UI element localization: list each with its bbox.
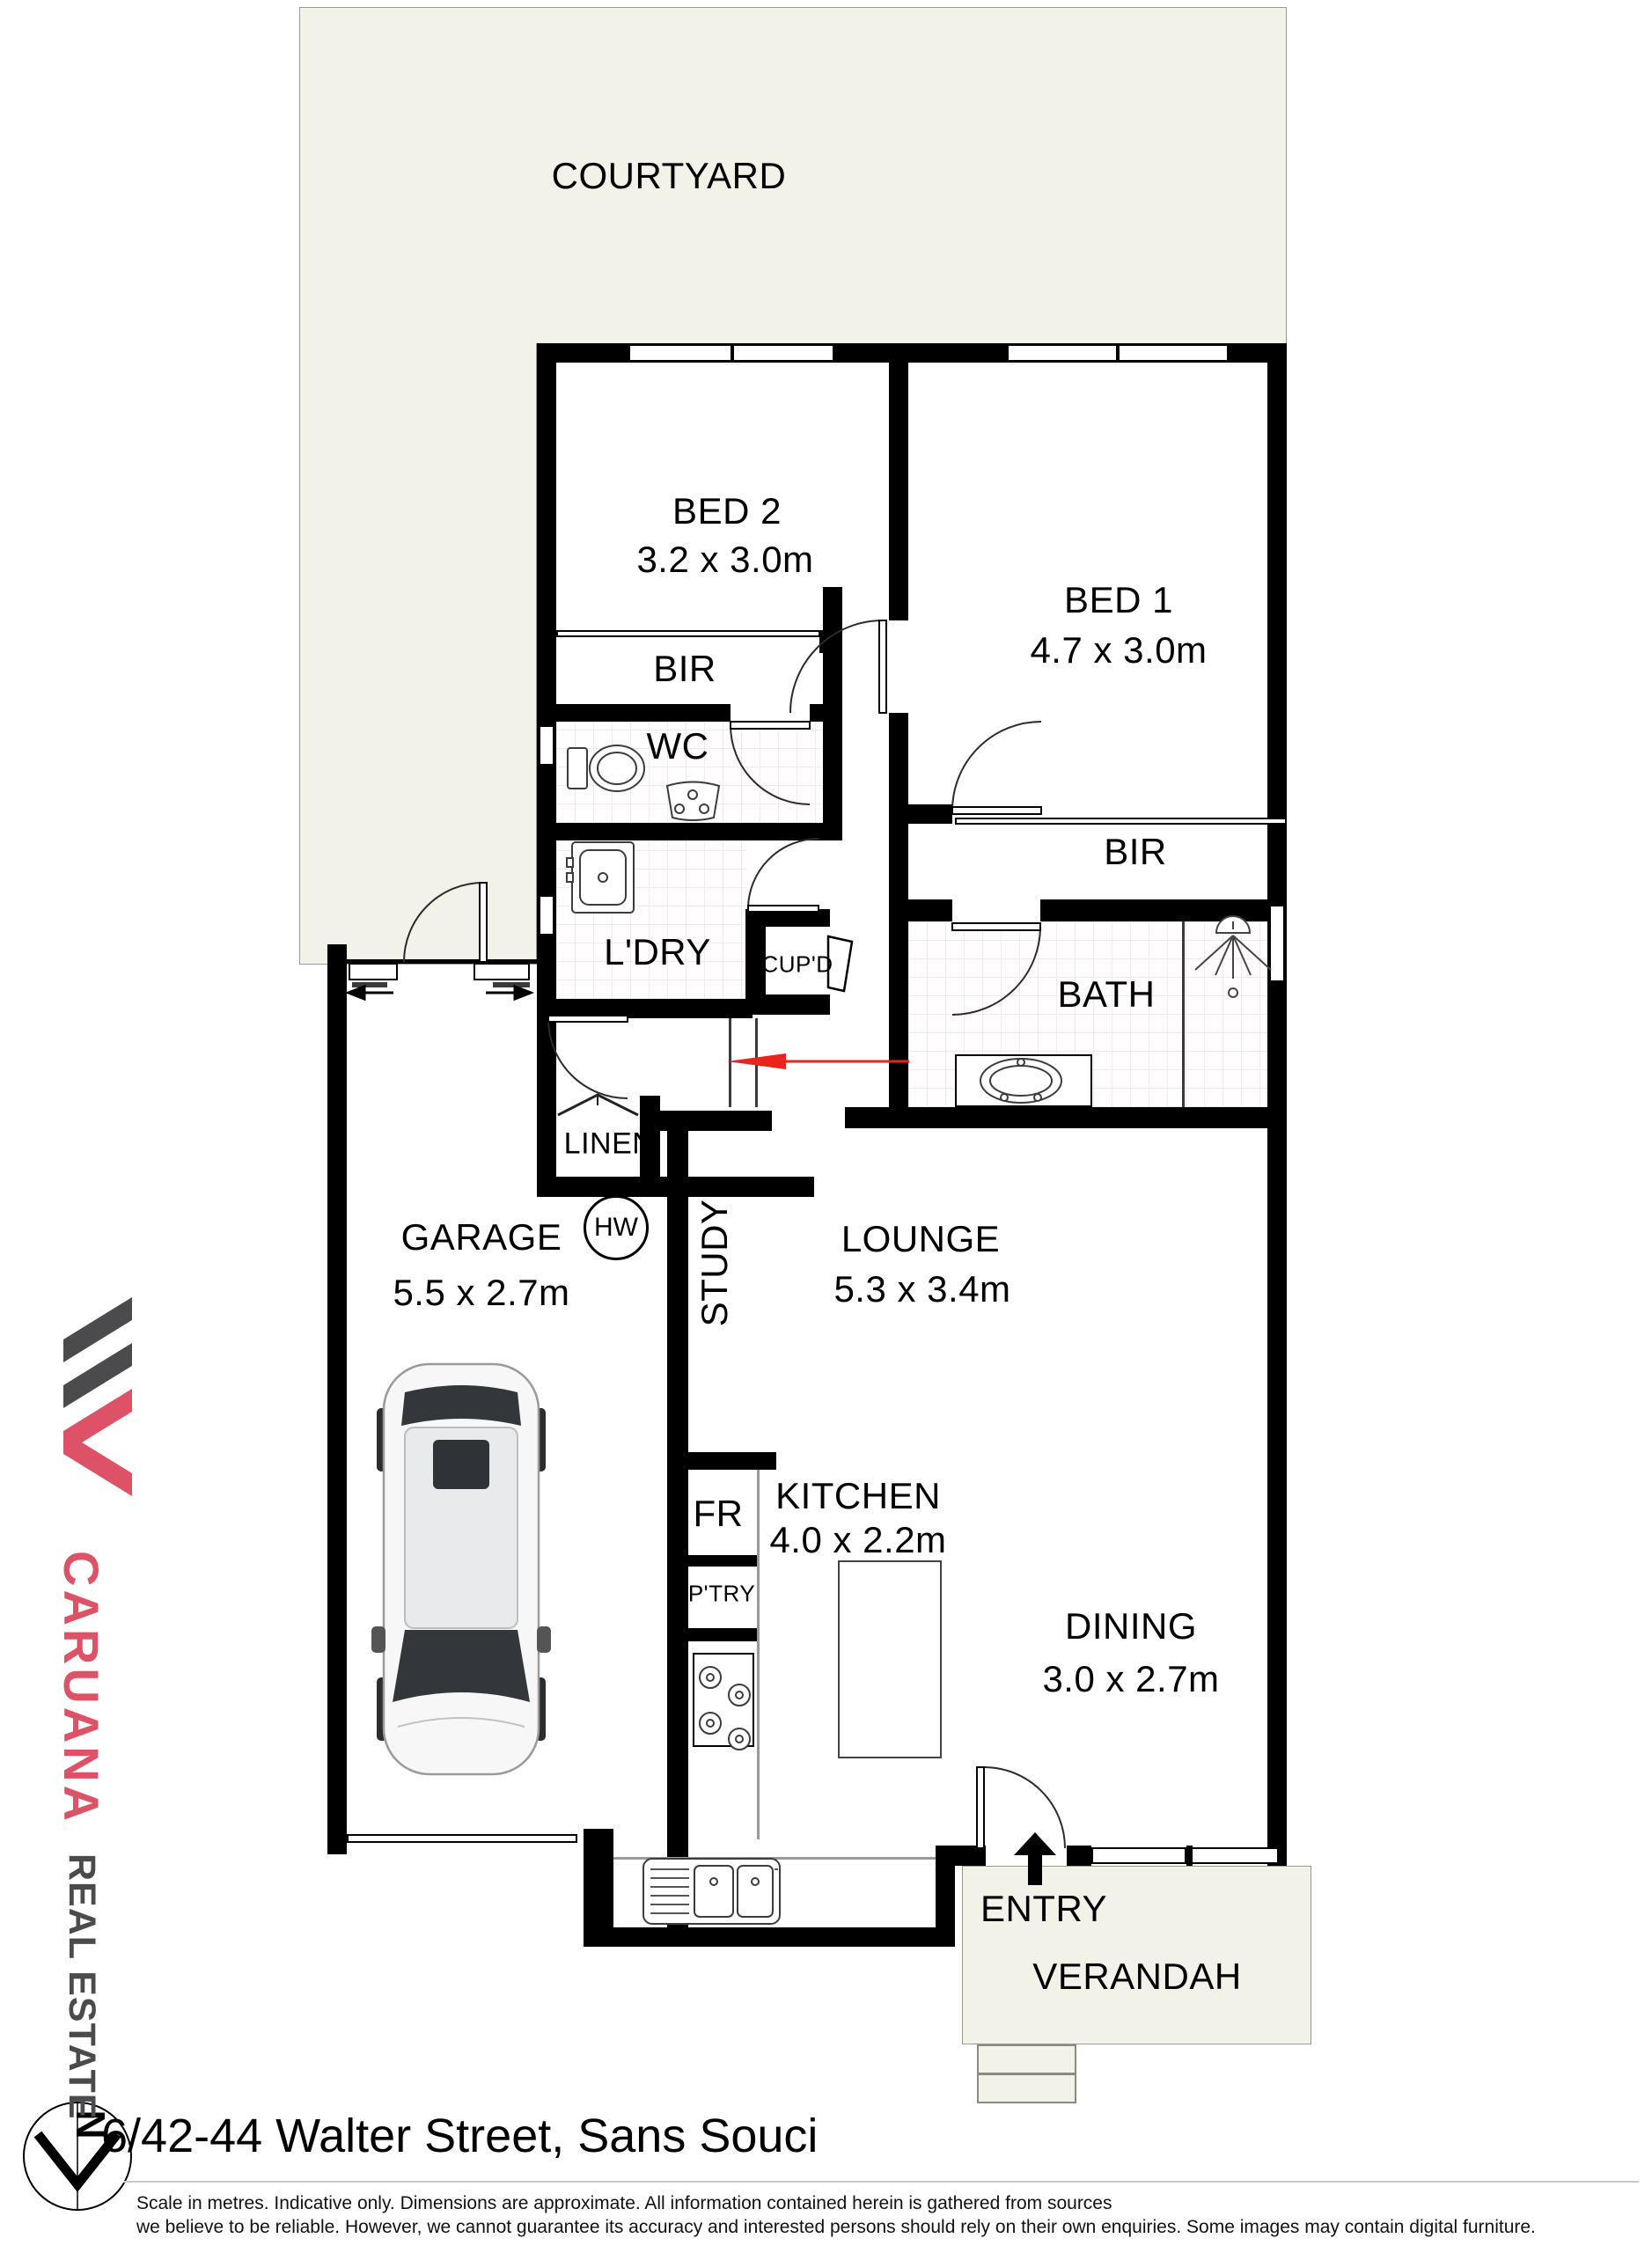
verandah-step <box>977 2044 1076 2074</box>
room-dims-bed2: 3.2 x 3.0m <box>636 539 813 581</box>
wall <box>673 1452 776 1470</box>
room-label-study: STUDY <box>694 1200 736 1327</box>
footer-divider <box>123 2181 1639 2183</box>
room-label-wc: WC <box>647 725 709 767</box>
wall <box>955 1846 986 1866</box>
garage-door <box>347 1834 577 1843</box>
sliding-door-panel <box>349 963 398 980</box>
agency-suffix-vertical: REAL ESTATE <box>60 1853 103 2153</box>
window <box>732 344 834 362</box>
courtyard-seam <box>300 339 536 348</box>
wall <box>889 804 908 1128</box>
wall <box>660 1111 772 1131</box>
verandah-step <box>977 2073 1076 2103</box>
window <box>628 344 732 362</box>
room-label-courtyard: COURTYARD <box>552 155 787 197</box>
wall <box>688 1555 760 1567</box>
room-label-bed1: BED 1 <box>1064 579 1173 621</box>
room-label-garage: GARAGE <box>401 1216 562 1259</box>
disclaimer-line-1: Scale in metres. Indicative only. Dimens… <box>136 2191 1536 2215</box>
wall <box>584 1927 955 1947</box>
kitchen-counter-edge <box>613 1857 936 1860</box>
label-entry: ENTRY <box>980 1888 1107 1930</box>
wall <box>889 713 908 804</box>
window <box>1118 344 1229 362</box>
slide-arrow-left-icon <box>349 987 393 999</box>
hot-water-label: HW <box>594 1213 638 1243</box>
room-dims-dining: 3.0 x 2.7m <box>1042 1658 1219 1700</box>
wall <box>745 909 830 927</box>
shower-screen <box>1182 921 1185 1107</box>
room-dims-garage: 5.5 x 2.7m <box>393 1272 569 1314</box>
wall <box>745 994 830 1015</box>
wall <box>889 363 908 620</box>
room-dims-lounge: 5.3 x 3.4m <box>833 1268 1010 1310</box>
floorplan-page: HW <box>0 0 1652 2253</box>
wall <box>584 1829 613 1947</box>
room-dims-bed1: 4.7 x 3.0m <box>1030 629 1207 671</box>
room-label-kitchen: KITCHEN <box>775 1475 941 1517</box>
wall <box>667 1131 688 1927</box>
room-label-lounge: LOUNGE <box>841 1218 1000 1260</box>
cooktop <box>693 1653 754 1747</box>
label-pantry: P'TRY <box>688 1581 755 1608</box>
disclaimer-line-2: we believe to be reliable. However, we c… <box>136 2215 1536 2239</box>
wall <box>908 899 952 921</box>
wall <box>1267 343 1287 1866</box>
wall <box>327 1835 347 1854</box>
wall <box>936 1846 955 1947</box>
car-icon <box>371 1364 551 1774</box>
wall <box>908 804 952 824</box>
wall <box>550 823 823 840</box>
door-entry <box>977 1767 1065 1848</box>
room-label-verandah: VERANDAH <box>1032 1956 1241 1998</box>
wall <box>1040 899 1287 921</box>
slide-arrow-right-icon <box>486 987 531 999</box>
courtyard-area <box>299 7 1287 345</box>
door-laundry <box>748 839 819 912</box>
bench-edge <box>757 1644 760 1839</box>
sliding-door-rail <box>493 982 530 987</box>
window <box>1091 1847 1186 1864</box>
label-bir-bed1: BIR <box>1104 831 1167 873</box>
window <box>1269 905 1285 982</box>
disclaimer-text: Scale in metres. Indicative only. Dimens… <box>136 2191 1536 2239</box>
room-label-bath: BATH <box>1058 973 1156 1016</box>
courtyard-side-area <box>299 343 537 965</box>
hall-line <box>729 1018 731 1107</box>
sliding-door-rail <box>352 982 387 987</box>
property-address: 6/42-44 Walter Street, Sans Souci <box>101 2109 818 2163</box>
hall-line <box>755 1018 758 1107</box>
window <box>539 725 554 766</box>
robe-track <box>556 630 820 637</box>
door-linen-hall <box>548 1016 628 1098</box>
linen-bifold-door <box>558 1095 638 1115</box>
label-linen: LINEN <box>564 1127 655 1162</box>
sliding-door-panel <box>474 963 530 980</box>
room-label-dining: DINING <box>1065 1605 1197 1648</box>
room-dims-kitchen: 4.0 x 2.2m <box>769 1519 946 1561</box>
robe-track <box>955 818 1287 825</box>
label-bir-bed2: BIR <box>653 648 716 690</box>
label-cupboard: CUP'D <box>761 951 833 979</box>
wall <box>819 630 842 653</box>
hot-water-unit: HW <box>584 1195 649 1260</box>
room-label-bed2: BED 2 <box>672 490 782 532</box>
window <box>1191 1847 1279 1864</box>
agency-name-vertical: CARUANA <box>53 1551 110 1850</box>
bath-vanity <box>955 1054 1092 1107</box>
laundry-floor <box>556 840 745 999</box>
wall <box>1067 1846 1091 1866</box>
wall <box>845 1107 1287 1128</box>
label-fridge: FR <box>694 1493 744 1535</box>
fridge-nook-edge <box>757 1470 760 1644</box>
door-bed1 <box>952 722 1041 814</box>
window <box>1007 344 1118 362</box>
wall <box>327 944 347 1854</box>
room-label-laundry: L'DRY <box>604 931 711 973</box>
wall <box>823 587 842 840</box>
wall <box>550 704 731 722</box>
kitchen-island <box>838 1560 942 1758</box>
wall <box>688 1628 760 1641</box>
wall <box>537 343 556 1197</box>
agency-logo-mark <box>63 1297 132 1496</box>
kitchen-sink-icon <box>643 1859 780 1924</box>
wall <box>537 999 753 1018</box>
wall <box>1279 1846 1287 1866</box>
window <box>539 895 554 936</box>
